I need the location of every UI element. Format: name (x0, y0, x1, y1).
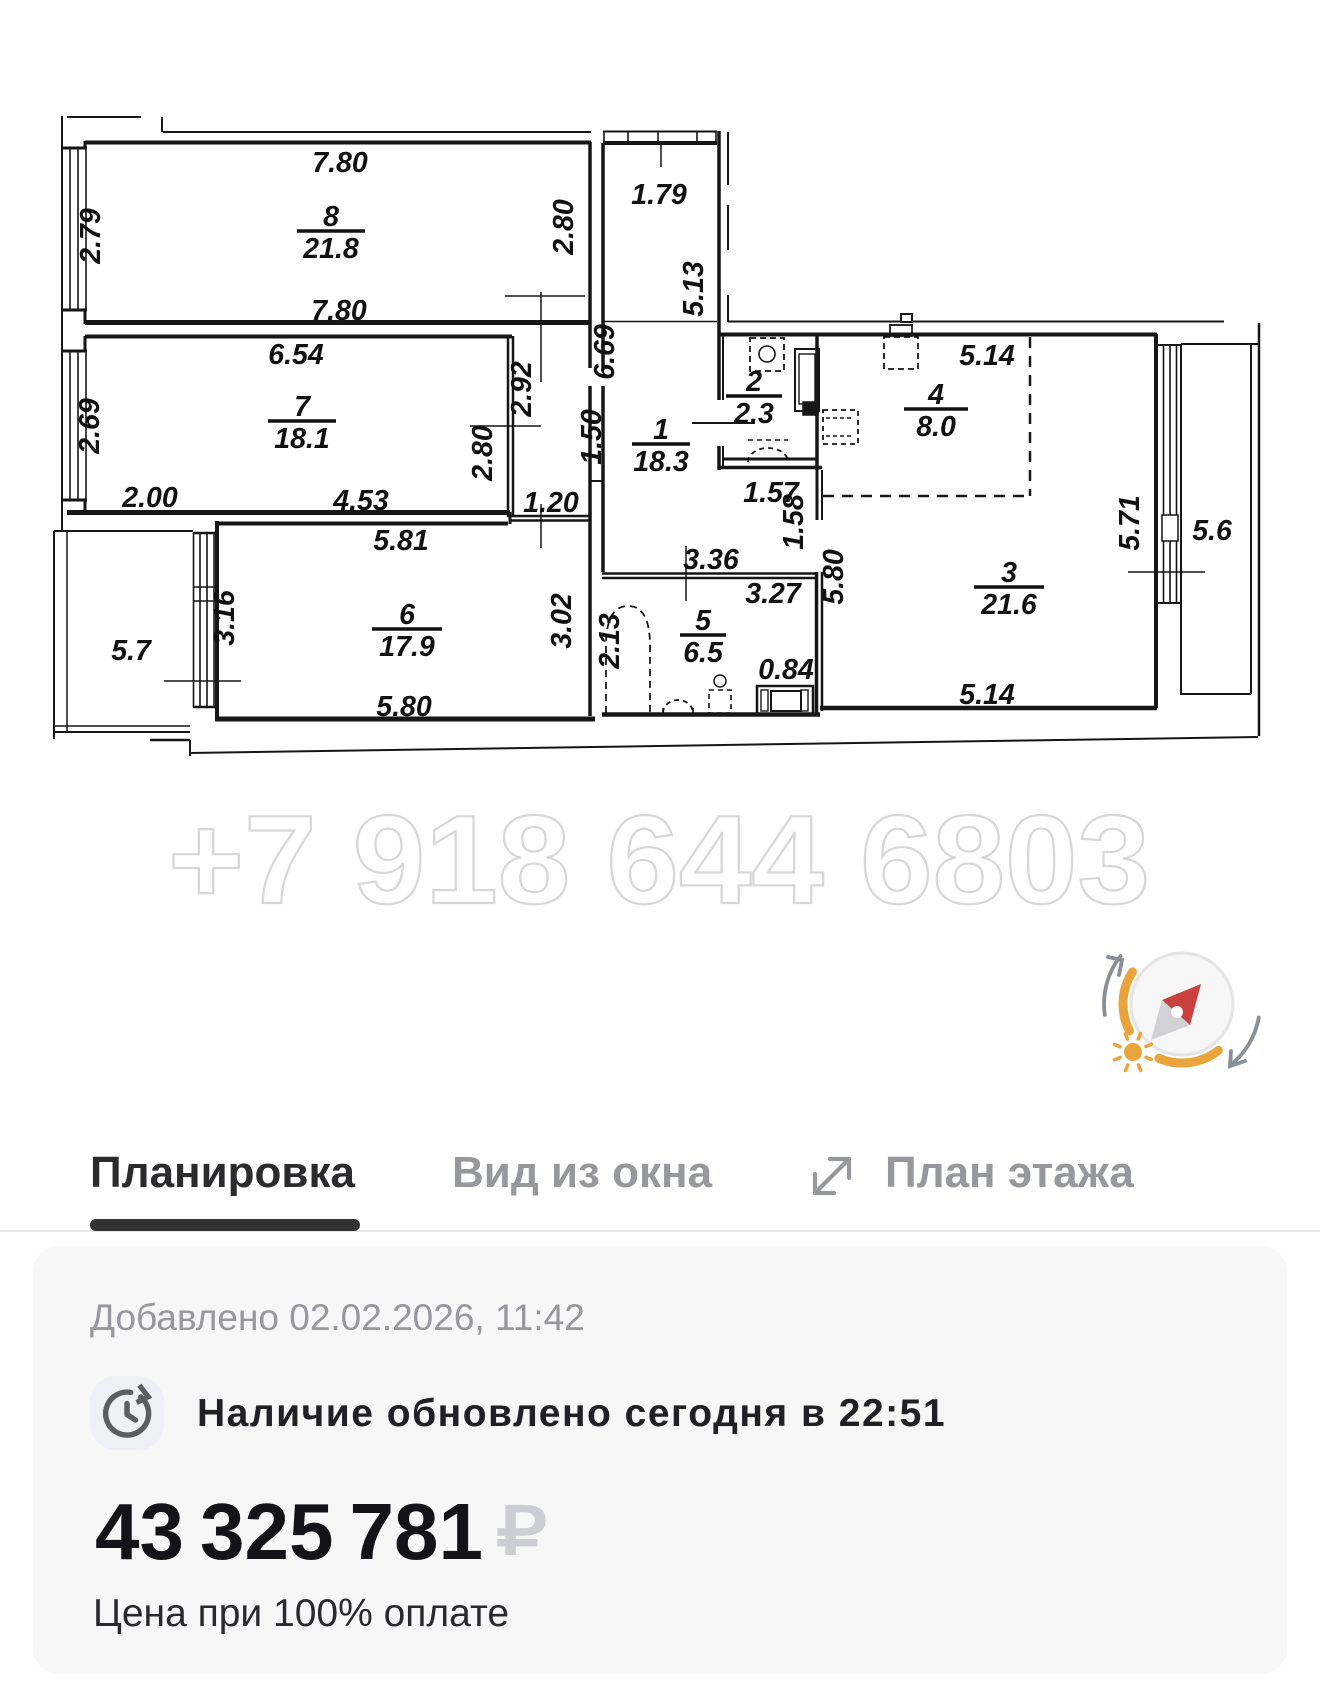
svg-text:4.53: 4.53 (332, 485, 389, 517)
svg-text:5.7: 5.7 (111, 635, 152, 667)
svg-text:2.13: 2.13 (594, 613, 626, 670)
svg-text:1: 1 (653, 414, 669, 446)
svg-text:3.36: 3.36 (683, 544, 739, 576)
svg-text:5.71: 5.71 (1114, 495, 1146, 550)
svg-text:5.14: 5.14 (959, 340, 1015, 372)
svg-text:8: 8 (323, 201, 339, 233)
svg-text:1.79: 1.79 (631, 179, 687, 211)
svg-text:5.80: 5.80 (376, 691, 432, 723)
svg-text:2: 2 (745, 366, 762, 398)
svg-text:3.27: 3.27 (745, 578, 802, 610)
svg-text:6.5: 6.5 (683, 637, 724, 669)
svg-text:3.16: 3.16 (209, 590, 241, 646)
svg-text:1.20: 1.20 (523, 487, 579, 519)
svg-text:21.8: 21.8 (302, 233, 359, 265)
svg-text:2.3: 2.3 (733, 398, 774, 430)
svg-text:2.92: 2.92 (506, 361, 538, 418)
svg-text:5.81: 5.81 (373, 525, 428, 557)
svg-text:1.58: 1.58 (778, 494, 810, 550)
svg-text:2.69: 2.69 (74, 398, 106, 455)
svg-text:2.79: 2.79 (75, 208, 107, 265)
svg-text:5.13: 5.13 (678, 261, 710, 317)
svg-text:17.9: 17.9 (379, 631, 435, 663)
svg-text:5.14: 5.14 (959, 679, 1015, 711)
svg-text:7: 7 (294, 391, 311, 423)
svg-text:7.80: 7.80 (311, 295, 367, 327)
svg-text:18.3: 18.3 (633, 446, 689, 478)
svg-text:+7 918 644 6803: +7 918 644 6803 (168, 789, 1150, 930)
svg-text:18.1: 18.1 (274, 423, 329, 455)
svg-text:8.0: 8.0 (916, 411, 956, 443)
svg-text:0.84: 0.84 (758, 654, 814, 686)
svg-text:6: 6 (399, 599, 415, 631)
svg-text:3: 3 (1001, 557, 1017, 589)
svg-text:3.02: 3.02 (546, 593, 578, 649)
svg-text:2.80: 2.80 (548, 199, 580, 256)
svg-text:5: 5 (695, 605, 712, 637)
svg-text:6.69: 6.69 (589, 324, 621, 380)
svg-text:21.6: 21.6 (980, 589, 1037, 621)
svg-text:2.80: 2.80 (467, 425, 499, 482)
svg-text:1.50: 1.50 (576, 409, 608, 465)
svg-text:4: 4 (927, 379, 944, 411)
svg-text:7.80: 7.80 (312, 147, 368, 179)
svg-text:2.00: 2.00 (121, 482, 178, 514)
svg-text:5.6: 5.6 (1192, 515, 1232, 547)
svg-text:5.80: 5.80 (818, 549, 850, 605)
svg-text:6.54: 6.54 (268, 339, 324, 371)
